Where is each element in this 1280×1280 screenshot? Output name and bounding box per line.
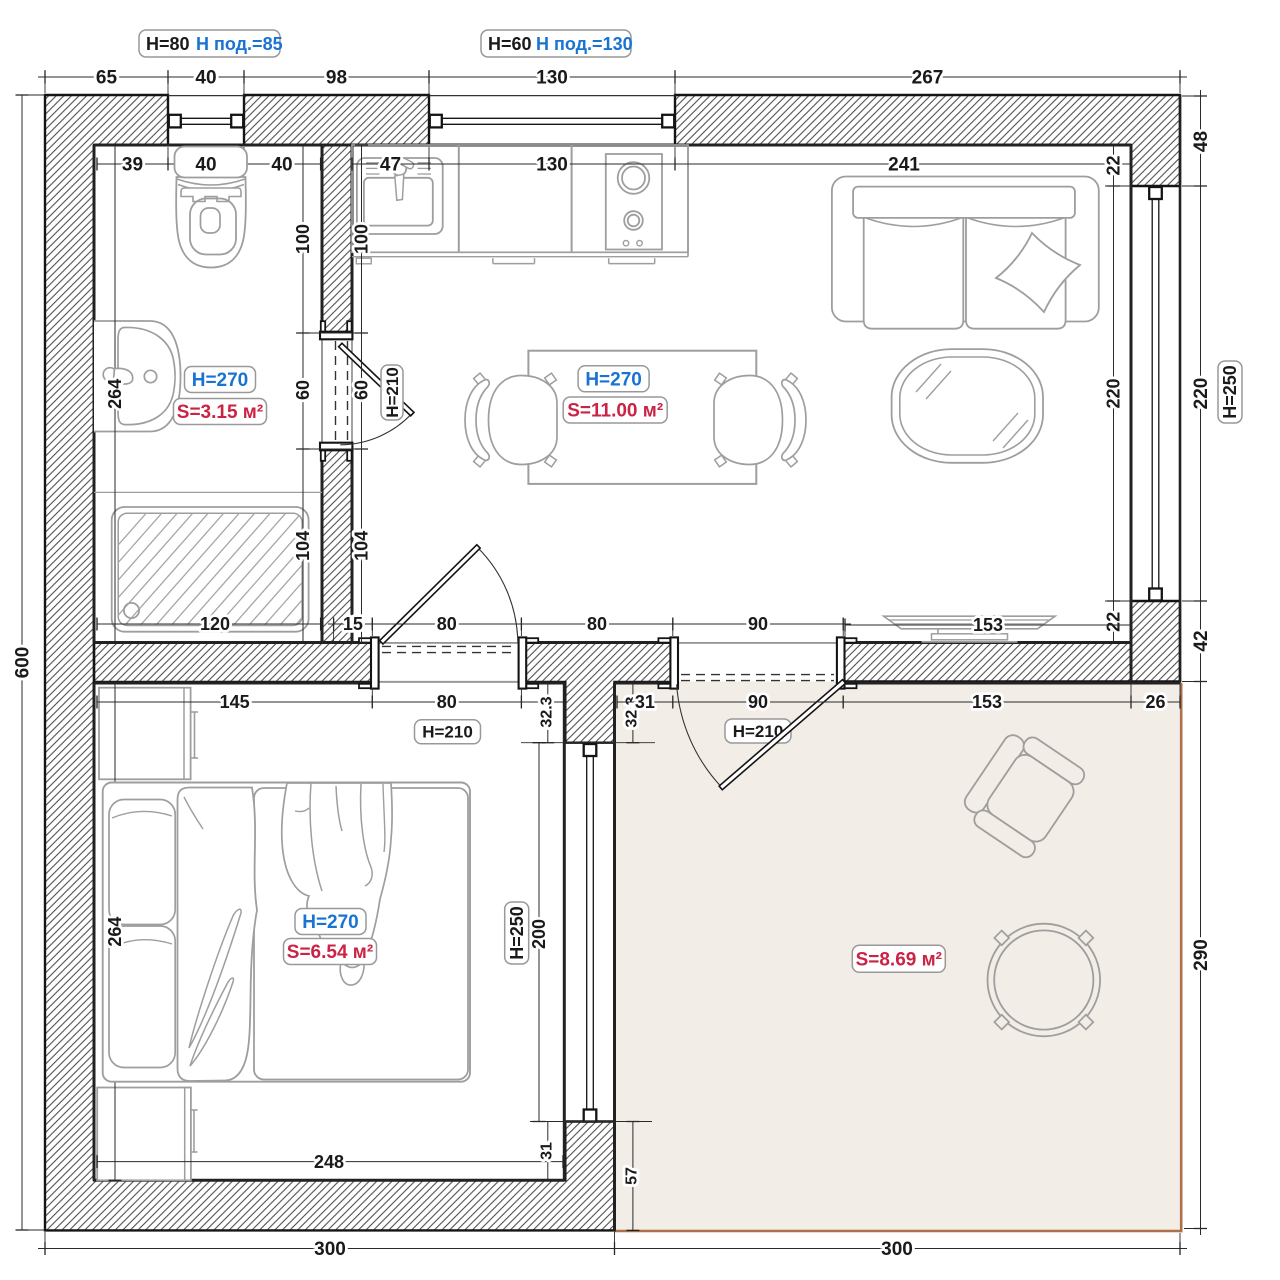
svg-text:57: 57	[623, 1167, 640, 1185]
svg-text:S=8.69 м²: S=8.69 м²	[856, 949, 942, 970]
svg-text:300: 300	[314, 1239, 346, 1260]
svg-text:80: 80	[587, 614, 607, 634]
svg-text:H=80: H=80	[146, 34, 190, 54]
svg-text:47: 47	[380, 155, 401, 176]
svg-text:200: 200	[529, 919, 549, 949]
svg-text:26: 26	[1145, 692, 1165, 712]
svg-text:H=210: H=210	[422, 723, 473, 742]
svg-text:145: 145	[220, 692, 250, 712]
svg-text:15: 15	[343, 614, 363, 634]
svg-text:H=270: H=270	[302, 912, 359, 933]
svg-text:130: 130	[536, 68, 568, 89]
svg-text:40: 40	[195, 155, 216, 176]
svg-text:S=6.54 м²: S=6.54 м²	[287, 942, 373, 963]
svg-text:600: 600	[13, 647, 34, 679]
svg-text:42: 42	[1191, 630, 1212, 651]
svg-text:Н под.=130: Н под.=130	[536, 34, 633, 54]
svg-text:22: 22	[1104, 612, 1124, 632]
svg-text:241: 241	[888, 155, 920, 176]
svg-text:153: 153	[973, 615, 1003, 635]
svg-text:32.3: 32.3	[538, 696, 555, 727]
svg-text:22: 22	[1104, 155, 1124, 175]
svg-text:H=270: H=270	[192, 370, 249, 391]
svg-text:264: 264	[105, 917, 125, 947]
svg-text:H=210: H=210	[383, 367, 402, 418]
svg-text:130: 130	[536, 155, 568, 176]
svg-text:60: 60	[293, 380, 313, 400]
svg-text:80: 80	[437, 614, 457, 634]
svg-text:31: 31	[538, 1142, 555, 1160]
svg-text:S=3.15 м²: S=3.15 м²	[177, 402, 263, 423]
svg-text:248: 248	[314, 1152, 344, 1172]
svg-text:220: 220	[1104, 378, 1124, 408]
svg-text:153: 153	[972, 692, 1002, 712]
svg-text:120: 120	[200, 614, 230, 634]
svg-text:80: 80	[437, 692, 457, 712]
svg-text:65: 65	[96, 68, 118, 89]
svg-text:H=250: H=250	[507, 906, 527, 960]
svg-text:48: 48	[1191, 131, 1212, 152]
svg-text:300: 300	[881, 1239, 913, 1260]
svg-text:40: 40	[195, 68, 216, 89]
svg-text:Н под.=85: Н под.=85	[196, 34, 283, 54]
svg-text:220: 220	[1191, 378, 1212, 410]
svg-text:264: 264	[105, 379, 125, 409]
svg-text:H=270: H=270	[585, 369, 642, 390]
svg-text:104: 104	[352, 531, 372, 561]
svg-text:290: 290	[1191, 939, 1212, 971]
svg-text:90: 90	[748, 692, 768, 712]
svg-text:S=11.00 м²: S=11.00 м²	[567, 401, 663, 422]
svg-text:90: 90	[748, 614, 768, 634]
svg-text:31: 31	[635, 692, 655, 712]
svg-text:267: 267	[912, 68, 944, 89]
svg-text:104: 104	[293, 531, 313, 561]
svg-text:100: 100	[352, 224, 372, 254]
svg-text:39: 39	[122, 155, 143, 176]
svg-text:H=60: H=60	[488, 34, 532, 54]
svg-text:40: 40	[271, 155, 292, 176]
svg-text:60: 60	[352, 380, 372, 400]
svg-text:100: 100	[293, 224, 313, 254]
svg-text:H=250: H=250	[1220, 365, 1240, 419]
svg-text:98: 98	[326, 68, 347, 89]
